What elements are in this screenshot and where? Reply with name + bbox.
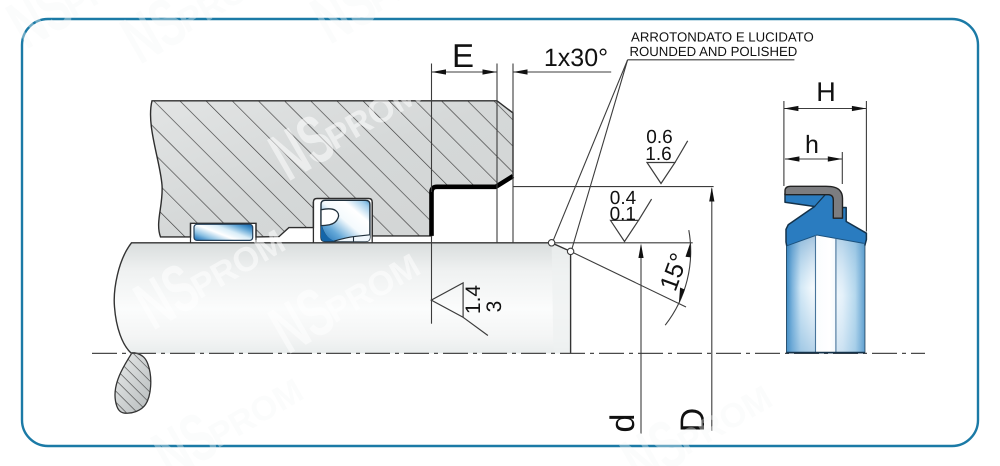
svg-text:h: h	[805, 131, 819, 159]
svg-text:1.4: 1.4	[462, 285, 485, 315]
svg-text:ARROTONDATO E LUCIDATO: ARROTONDATO E LUCIDATO	[631, 30, 814, 45]
svg-text:1x30°: 1x30°	[544, 44, 608, 72]
svg-text:E: E	[452, 37, 474, 74]
svg-text:H: H	[816, 77, 836, 107]
svg-text:0.1: 0.1	[610, 204, 636, 225]
svg-text:ROUNDED AND POLISHED: ROUNDED AND POLISHED	[629, 44, 797, 59]
svg-text:3: 3	[483, 301, 506, 313]
svg-text:1.6: 1.6	[645, 144, 671, 165]
